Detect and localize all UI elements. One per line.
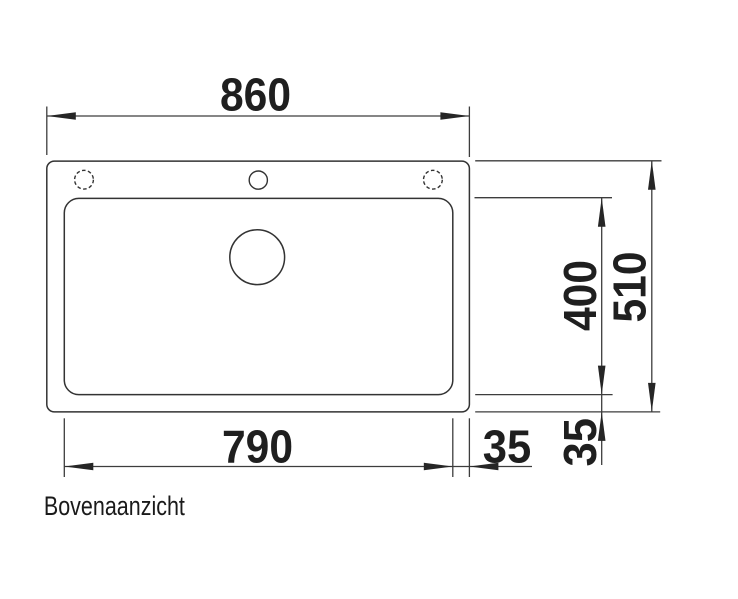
- svg-text:35: 35: [554, 418, 606, 467]
- svg-text:510: 510: [604, 252, 656, 323]
- svg-text:Bovenaanzicht: Bovenaanzicht: [44, 491, 185, 521]
- svg-text:790: 790: [222, 420, 293, 472]
- svg-text:400: 400: [554, 260, 606, 331]
- svg-text:35: 35: [483, 420, 532, 472]
- svg-text:860: 860: [220, 69, 291, 121]
